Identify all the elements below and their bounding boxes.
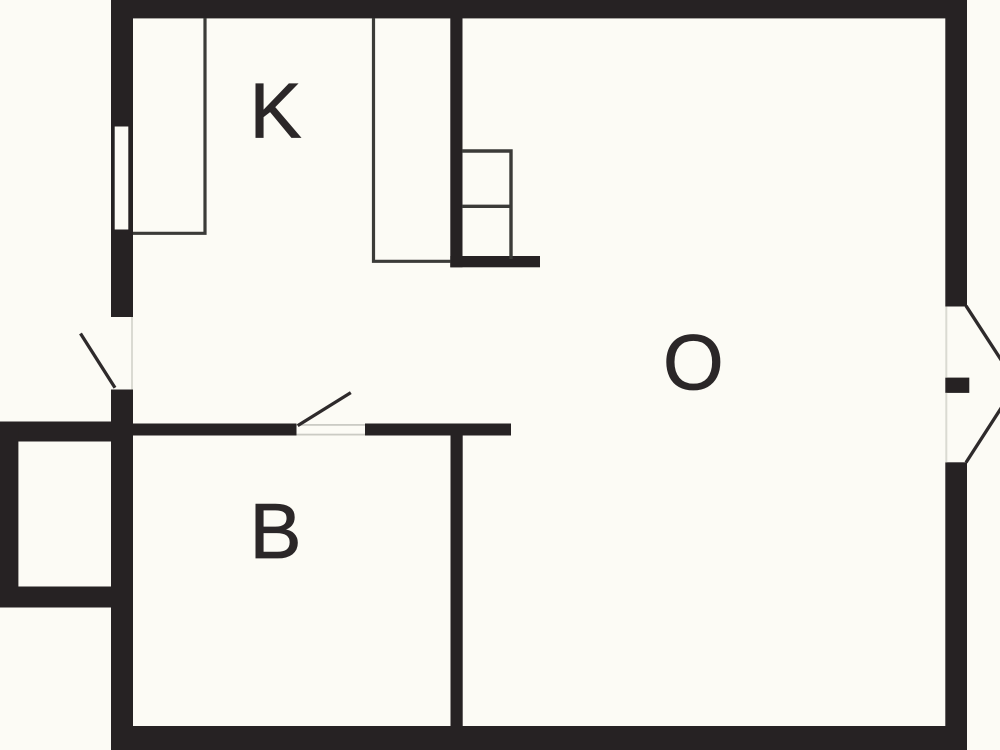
svg-text:B: B xyxy=(250,487,302,575)
svg-text:O: O xyxy=(663,318,724,406)
svg-text:K: K xyxy=(250,67,302,155)
